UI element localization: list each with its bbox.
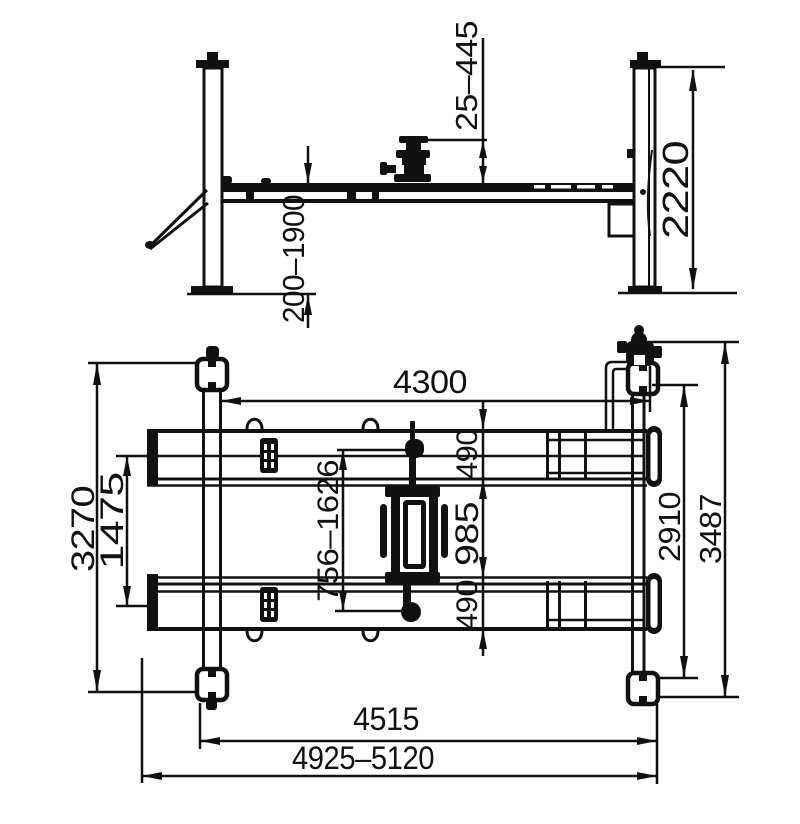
dim-jack-pad-travel: 25–445 xyxy=(424,21,487,183)
anchor-lug xyxy=(247,631,262,641)
dim-runway-center-distance: 1475 xyxy=(94,456,150,606)
runway-top-end-plate xyxy=(147,429,158,486)
dim-post-length-label: 4515 xyxy=(353,701,419,737)
anchor-lug xyxy=(247,419,262,429)
pivot-dot xyxy=(640,189,646,195)
slider-block xyxy=(260,587,278,622)
jack-pad xyxy=(399,136,428,143)
side-view: 25–445 2220 200–1900 xyxy=(145,21,737,328)
lift-dimension-drawing: 25–445 2220 200–1900 xyxy=(0,0,800,824)
dim-runway-adjust-range-label: 756–1626 xyxy=(312,460,345,602)
baseplate-top-right xyxy=(628,362,658,395)
dim-frame-width: 3270 xyxy=(65,363,198,692)
left-column xyxy=(191,52,233,294)
dim-jack-pad-travel-label: 25–445 xyxy=(449,21,484,131)
dim-frame-width-label: 3270 xyxy=(65,486,101,572)
dim-overall-length-label: 4925–5120 xyxy=(292,740,434,776)
lock-release-tab xyxy=(627,149,635,158)
dim-inner-length-label: 4300 xyxy=(393,364,467,400)
entry-ramp xyxy=(145,190,208,249)
technical-drawing-canvas: 25–445 2220 200–1900 xyxy=(0,0,800,824)
dim-column-height: 2220 xyxy=(655,69,697,290)
dim-lifting-height-label: 200–1900 xyxy=(276,195,311,323)
deck-stop-lug xyxy=(261,178,271,184)
plan-view: 4300 490 985 490 756–1626 xyxy=(65,325,739,784)
left-column-body xyxy=(204,68,222,287)
ramp-tip xyxy=(145,241,155,249)
baseplate-bottom-right xyxy=(628,672,658,705)
power-unit xyxy=(617,325,662,366)
baseplate-bottom-left xyxy=(197,668,227,710)
dim-column-height-label: 2220 xyxy=(655,141,696,239)
dim-runway-width-top-label: 490 xyxy=(451,429,484,479)
dim-runway-stack: 490 985 490 xyxy=(449,401,487,656)
right-column-body xyxy=(634,68,655,287)
safety-lock-bracket xyxy=(609,204,634,236)
deck-hinge-lug xyxy=(221,176,232,184)
anchor-lug xyxy=(363,631,378,641)
rolling-jack xyxy=(380,136,431,182)
dim-inner-width-label: 2910 xyxy=(652,492,687,562)
dim-runway-gap-label: 985 xyxy=(449,502,485,566)
anchor-lug xyxy=(363,419,378,429)
slider-block xyxy=(260,438,278,473)
cross-member-right xyxy=(633,394,645,673)
dim-inner-length: 4300 xyxy=(221,364,650,412)
dim-runway-width-bottom-label: 490 xyxy=(451,580,484,630)
dim-overall-width-label: 3487 xyxy=(693,494,728,564)
jack-base xyxy=(394,174,431,182)
runway-top xyxy=(147,419,662,487)
runway-bottom-end-plate xyxy=(147,574,158,631)
baseplate-top-left xyxy=(197,346,227,391)
